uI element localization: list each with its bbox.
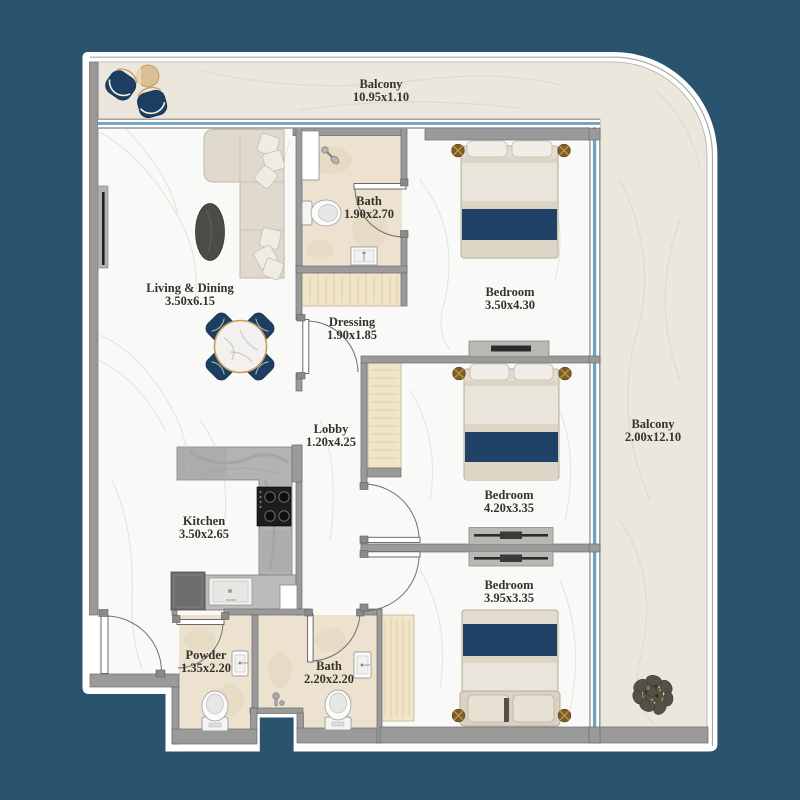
svg-text:3.50x6.15: 3.50x6.15 (165, 294, 215, 308)
svg-text:Living & Dining: Living & Dining (146, 281, 234, 295)
svg-text:1.90x1.85: 1.90x1.85 (327, 328, 377, 342)
svg-text:1.35x2.20: 1.35x2.20 (181, 661, 231, 675)
svg-text:3.50x4.30: 3.50x4.30 (485, 298, 535, 312)
svg-text:Bath: Bath (356, 194, 382, 208)
svg-text:Powder: Powder (186, 648, 227, 662)
svg-text:Bedroom: Bedroom (484, 578, 534, 592)
svg-text:Balcony: Balcony (359, 77, 403, 91)
svg-text:10.95x1.10: 10.95x1.10 (353, 90, 409, 104)
svg-text:Dressing: Dressing (329, 315, 376, 329)
svg-text:1.20x4.25: 1.20x4.25 (306, 435, 356, 449)
svg-text:Balcony: Balcony (631, 417, 675, 431)
svg-text:2.20x2.20: 2.20x2.20 (304, 672, 354, 686)
svg-text:4.20x3.35: 4.20x3.35 (484, 501, 534, 515)
svg-text:2.00x12.10: 2.00x12.10 (625, 430, 681, 444)
svg-text:Bedroom: Bedroom (484, 488, 534, 502)
svg-text:Lobby: Lobby (314, 422, 349, 436)
svg-text:3.95x3.35: 3.95x3.35 (484, 591, 534, 605)
svg-text:3.50x2.65: 3.50x2.65 (179, 527, 229, 541)
svg-text:1.90x2.70: 1.90x2.70 (344, 207, 394, 221)
svg-text:Bedroom: Bedroom (485, 285, 535, 299)
svg-text:Kitchen: Kitchen (183, 514, 225, 528)
svg-text:Bath: Bath (316, 659, 342, 673)
